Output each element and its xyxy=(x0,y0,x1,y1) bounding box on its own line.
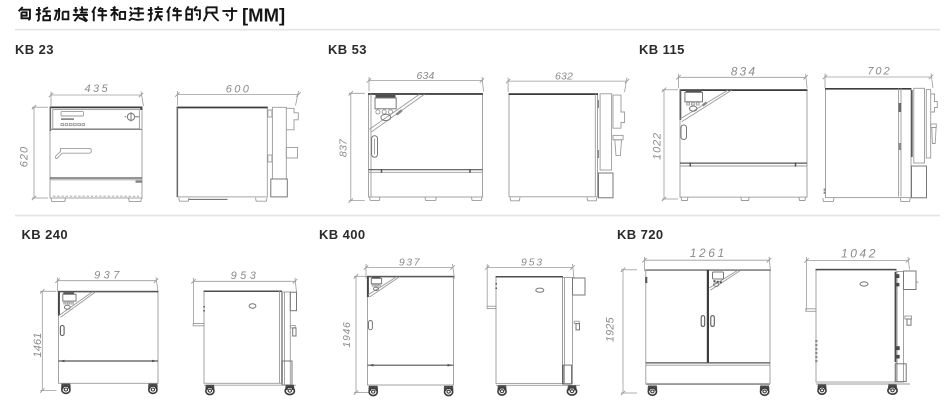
svg-text:634: 634 xyxy=(416,70,434,82)
svg-text:1925: 1925 xyxy=(604,316,616,342)
svg-text:953: 953 xyxy=(231,270,260,282)
svg-text:1042: 1042 xyxy=(841,246,878,260)
svg-text:[MM]: [MM] xyxy=(242,5,285,26)
svg-text:600: 600 xyxy=(226,84,252,96)
svg-text:632: 632 xyxy=(555,71,573,83)
svg-text:937: 937 xyxy=(399,256,421,268)
svg-text:435: 435 xyxy=(85,83,111,95)
svg-text:620: 620 xyxy=(19,146,31,167)
svg-text:1022: 1022 xyxy=(651,132,663,160)
svg-text:KB 115: KB 115 xyxy=(639,42,685,57)
svg-text:837: 837 xyxy=(338,138,350,157)
svg-text:KB 23: KB 23 xyxy=(15,42,54,57)
svg-text:834: 834 xyxy=(731,65,758,79)
svg-text:1261: 1261 xyxy=(690,246,727,260)
svg-text:KB 720: KB 720 xyxy=(617,227,663,242)
svg-text:1461: 1461 xyxy=(32,333,44,358)
svg-text:1946: 1946 xyxy=(341,321,353,347)
svg-text:KB 240: KB 240 xyxy=(22,227,68,242)
svg-text:937: 937 xyxy=(94,269,123,281)
svg-text:702: 702 xyxy=(867,65,891,77)
svg-text:KB 53: KB 53 xyxy=(328,42,367,57)
svg-text:KB 400: KB 400 xyxy=(319,227,365,242)
svg-text:953: 953 xyxy=(521,256,544,268)
